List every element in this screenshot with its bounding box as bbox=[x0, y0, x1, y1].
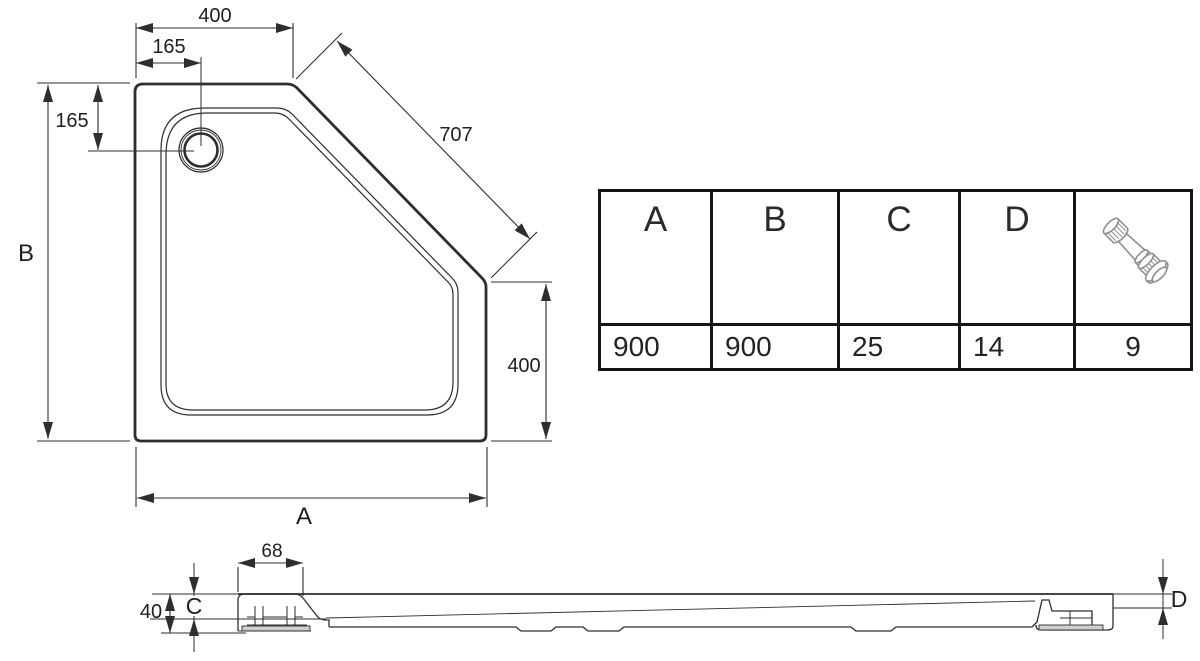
dim-depth-b-text: B bbox=[18, 240, 34, 267]
spec-header-b: B bbox=[713, 192, 840, 326]
spec-value-c: 25 bbox=[840, 326, 961, 368]
spec-header-d: D bbox=[961, 192, 1076, 326]
spec-header-c: C bbox=[840, 192, 961, 326]
dim-upstand-text: 68 bbox=[261, 541, 282, 562]
dim-width-a-text: A bbox=[296, 503, 312, 530]
spec-value-c-text: 25 bbox=[852, 331, 883, 363]
dim-drain-left-text: 165 bbox=[152, 36, 185, 58]
spec-value-feet: 9 bbox=[1076, 326, 1190, 368]
spec-value-b-text: 900 bbox=[725, 331, 772, 363]
dim-diagonal-text: 707 bbox=[439, 124, 472, 146]
section-view bbox=[150, 559, 1172, 652]
dim-width-a bbox=[136, 447, 487, 507]
basin-rim-outer bbox=[161, 108, 458, 415]
spec-header-a: A bbox=[601, 192, 713, 326]
dim-upstand-68 bbox=[238, 563, 303, 596]
spec-header-a-label: A bbox=[644, 200, 667, 240]
basin-rim-inner bbox=[166, 113, 453, 410]
section-right-ribs bbox=[1060, 611, 1092, 626]
section-floor-slope bbox=[326, 601, 1035, 618]
section-right-block bbox=[1032, 600, 1092, 627]
section-bottom-profile bbox=[329, 627, 1032, 631]
dimensions-spec-table: A B C D bbox=[598, 189, 1193, 371]
section-right-foot-pad bbox=[1039, 625, 1103, 630]
technical-drawing-page: 400 165 165 B A 400 707 bbox=[0, 0, 1200, 656]
dim-rim-thickness-text: D bbox=[1171, 586, 1188, 612]
spec-header-d-label: D bbox=[1004, 200, 1029, 240]
spec-header-feet bbox=[1076, 192, 1190, 326]
spec-value-a-text: 900 bbox=[613, 331, 660, 363]
section-left-ribs bbox=[247, 606, 307, 625]
spec-header-c-label: C bbox=[886, 200, 911, 240]
section-left-foot-pad bbox=[242, 626, 310, 631]
tray-outline bbox=[135, 84, 486, 441]
spec-value-d-text: 14 bbox=[973, 331, 1004, 363]
dim-right-edge-text: 400 bbox=[507, 355, 540, 377]
dim-inner-depth-text: C bbox=[186, 593, 203, 619]
dim-drain-top-text: 165 bbox=[55, 110, 88, 132]
plan-view bbox=[37, 23, 552, 507]
adjustable-foot-icon bbox=[1081, 204, 1185, 312]
spec-value-b: 900 bbox=[713, 326, 840, 368]
dim-depth-b bbox=[37, 83, 130, 441]
spec-value-feet-text: 9 bbox=[1125, 331, 1141, 363]
dim-top-edge-text: 400 bbox=[198, 5, 231, 27]
spec-value-a: 900 bbox=[601, 326, 713, 368]
dim-height-text: 40 bbox=[140, 601, 162, 623]
spec-header-b-label: B bbox=[763, 200, 786, 240]
spec-value-d: 14 bbox=[961, 326, 1076, 368]
